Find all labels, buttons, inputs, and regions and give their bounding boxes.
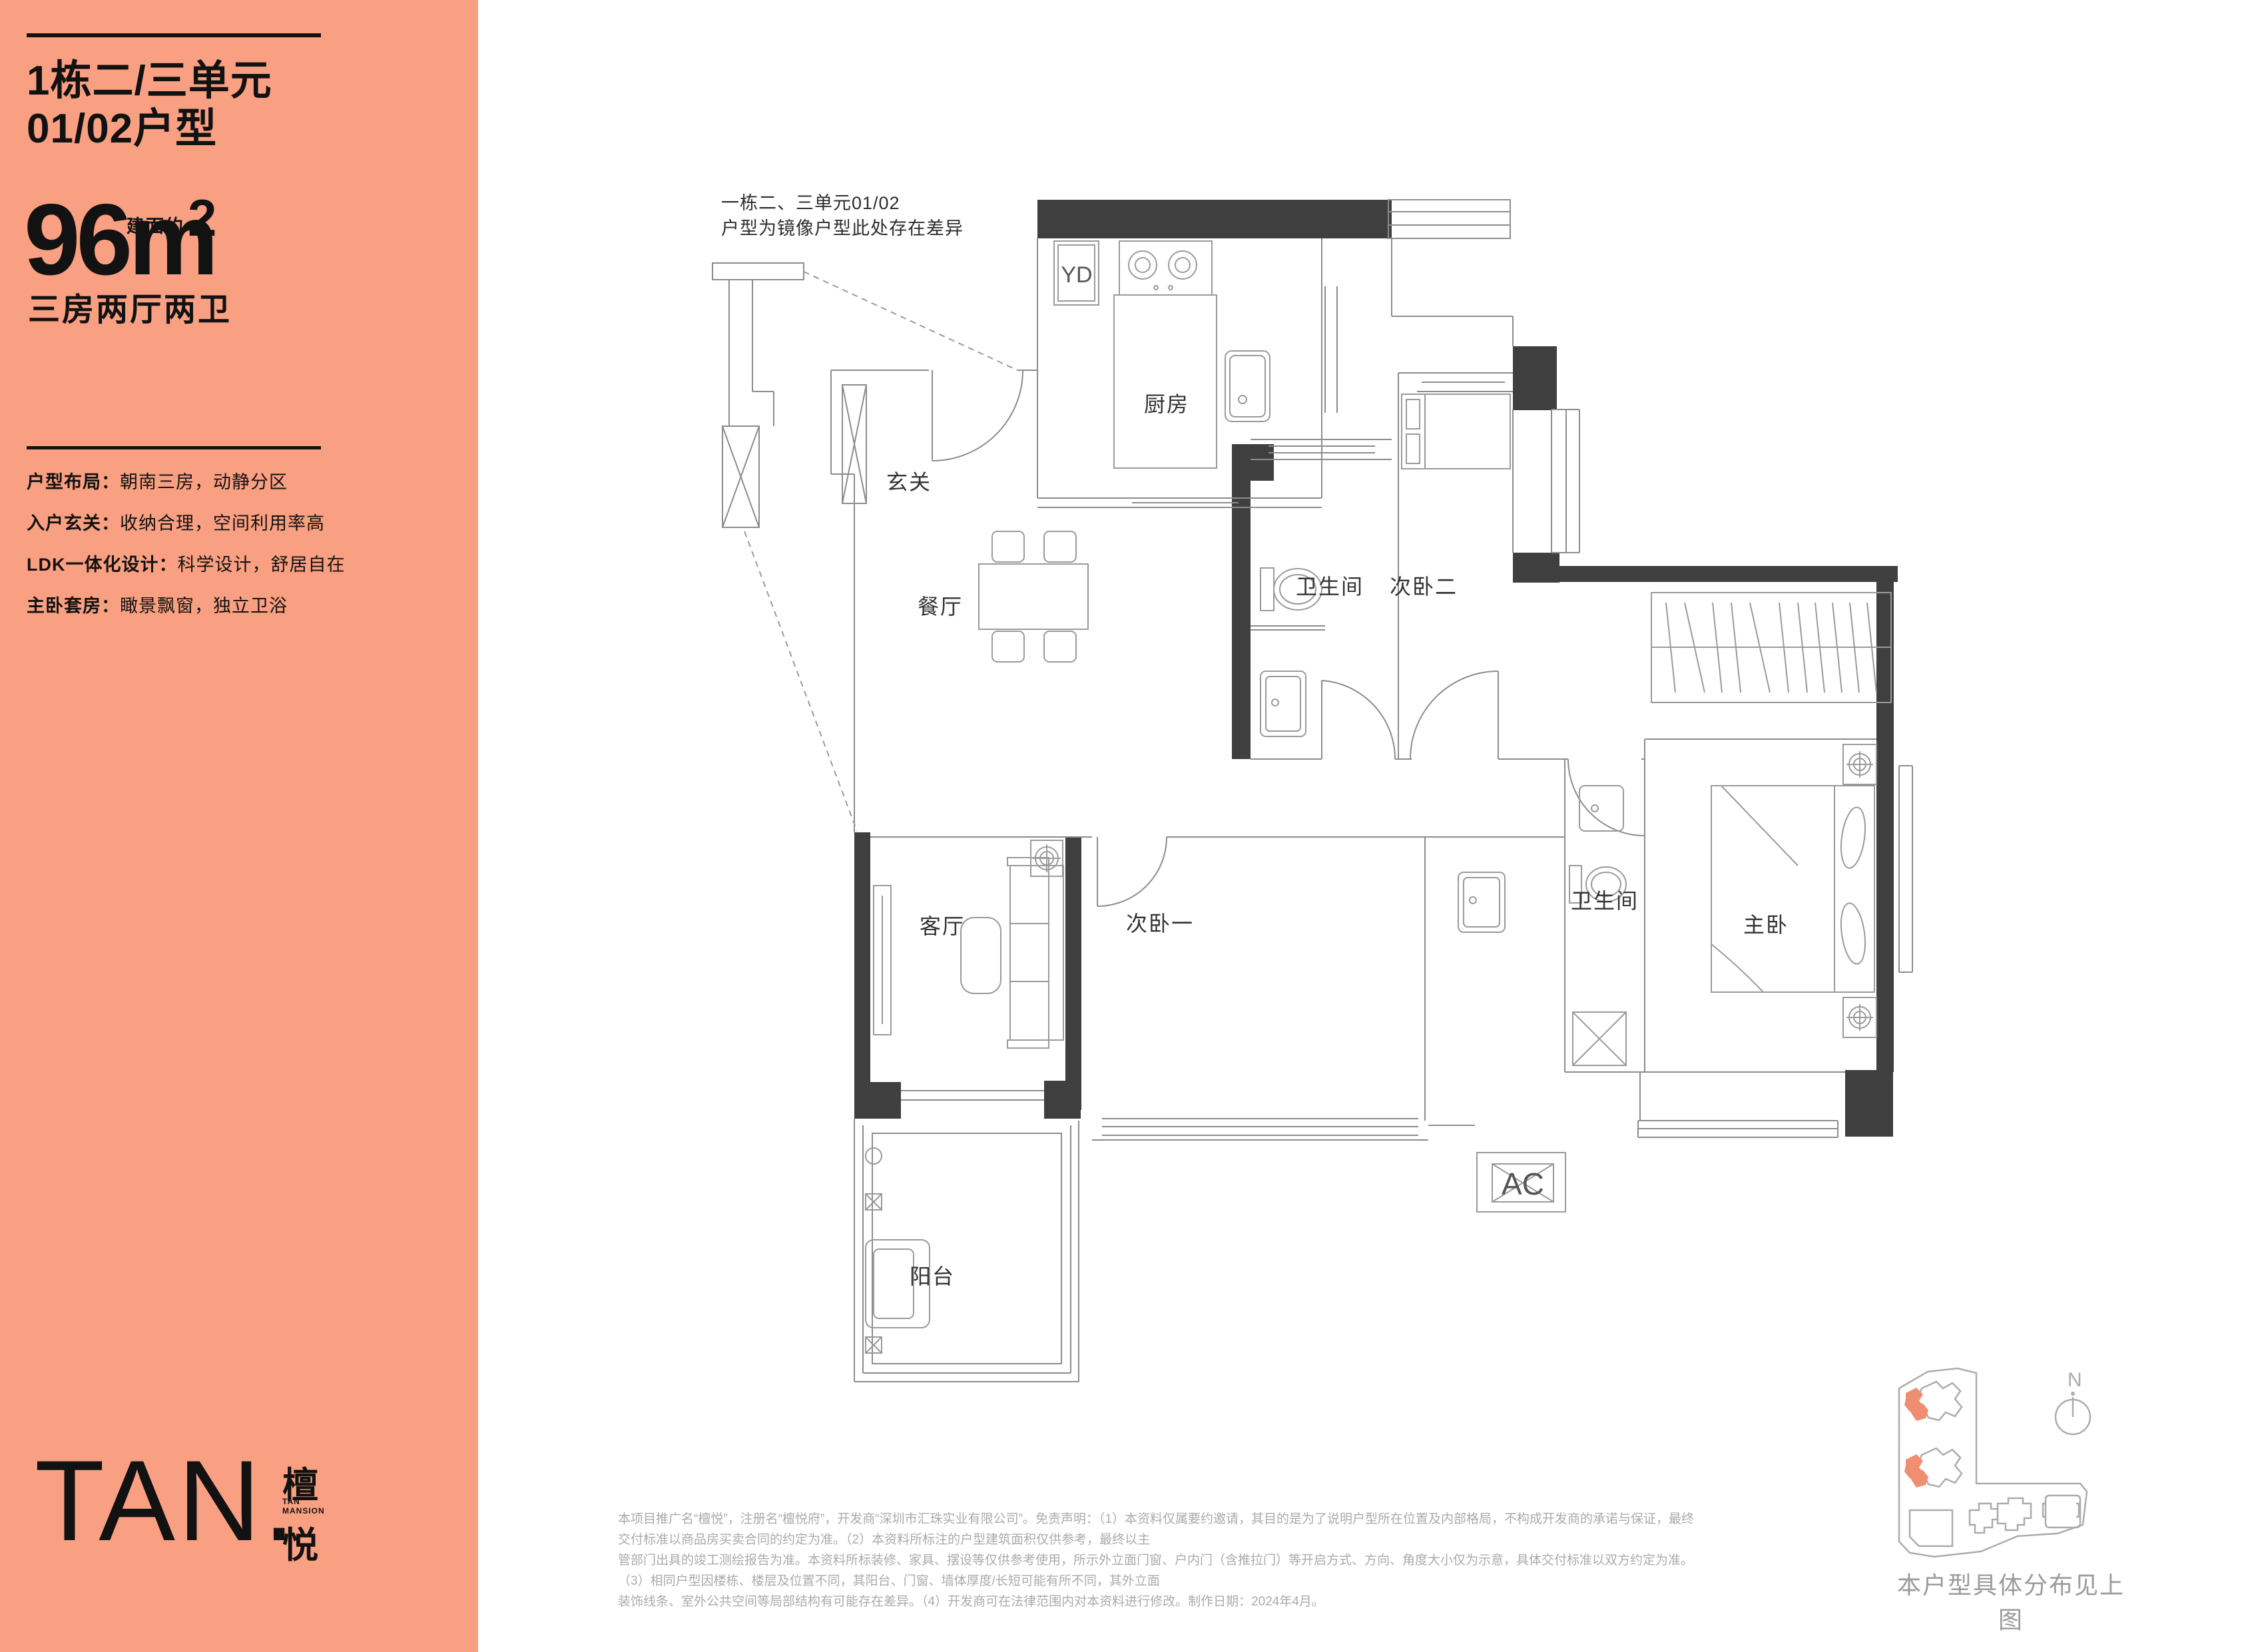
toilet-icon <box>1261 568 1274 611</box>
wardrobe-icon <box>1651 593 1891 702</box>
north-label: N <box>2068 1369 2082 1391</box>
brand-sub-line1: TAN <box>282 1497 325 1506</box>
room-label-zhuwo: 主卧 <box>1743 913 1789 937</box>
room-label-ciwo-2: 次卧二 <box>1390 575 1458 599</box>
feature-text: 朝南三房，动静分区 <box>120 472 288 492</box>
sink-icon <box>1261 671 1306 736</box>
kitchen-counter <box>1114 295 1217 468</box>
feature-item: 户型布局：朝南三房，动静分区 <box>27 467 453 493</box>
room-label-canting: 餐厅 <box>918 595 963 619</box>
feature-text: 科学设计，舒居自在 <box>178 555 346 575</box>
feature-text: 收纳合理，空间利用率高 <box>120 513 325 533</box>
site-map-caption: 本户型具体分布见上图 <box>1891 1566 2131 1635</box>
mirror-dashed-links <box>744 272 1017 831</box>
room-label-chufang: 厨房 <box>1144 392 1189 416</box>
furniture <box>866 241 1891 1353</box>
site-boundary <box>1899 1368 2087 1557</box>
feature-text: 瞰景飘窗，独立卫浴 <box>120 596 288 616</box>
coffee-table-icon <box>961 918 1001 993</box>
room-label-weishengjian-2: 卫生间 <box>1571 889 1639 913</box>
feature-label: 入户玄关： <box>27 513 120 533</box>
kitchen-sink-icon <box>1225 351 1270 421</box>
unit-location-highlight <box>1904 1388 1928 1488</box>
feature-item: LDK一体化设计：科学设计，舒居自在 <box>27 550 453 576</box>
room-label-xuanguan: 玄关 <box>886 470 932 494</box>
feature-item: 主卧套房：瞰景飘窗，独立卫浴 <box>27 591 453 617</box>
area-value: 96m <box>24 189 214 290</box>
mark-label-yd: YD <box>1061 262 1092 288</box>
unit-title-line2: 01/02户型 <box>27 105 272 153</box>
interior-walls <box>712 200 1912 1382</box>
floorplan-drawing: 玄关厨房餐厅客厅卫生间次卧二次卧一卫生间主卧阳台YDAC <box>653 87 2051 1385</box>
master-bed-icon <box>1711 786 1874 992</box>
brand-logo-subtext: TAN MANSION <box>282 1497 325 1515</box>
room-label-weishengjian-1: 卫生间 <box>1296 575 1364 599</box>
brand-logo-latin: TAN. <box>35 1444 298 1558</box>
feature-label: LDK一体化设计： <box>27 555 178 575</box>
disclaimer-line2: 管部门出具的竣工测绘报告为准。本资料所标装修、家具、摆设等仅供参考使用，所示外立… <box>618 1550 1707 1591</box>
room-label-keting: 客厅 <box>920 914 965 938</box>
unit-title-line1: 1栋二/三单元 <box>27 57 272 105</box>
layout-summary: 三房两厅两卫 <box>28 283 232 330</box>
feature-list: 户型布局：朝南三房，动静分区 入户玄关：收纳合理，空间利用率高 LDK一体化设计… <box>27 467 453 633</box>
feature-label: 主卧套房： <box>27 596 120 616</box>
bed-icon <box>1402 394 1510 469</box>
brand-sub-line2: MANSION <box>282 1506 325 1515</box>
area-superscript: 2 <box>188 188 216 248</box>
site-map-inset: N <box>1878 1345 2157 1571</box>
top-divider <box>27 33 321 37</box>
legal-disclaimer: 本项目推广名“檀悦”，注册名“檀悦府”，开发商“深圳市汇珠实业有限公司”。免责声… <box>618 1509 1707 1612</box>
room-label-ciwo-1: 次卧一 <box>1126 912 1194 936</box>
sidebar-panel: 1栋二/三单元 01/02户型 96m 建面约 2 三房两厅两卫 户型布局：朝南… <box>0 0 478 1652</box>
disclaimer-line3: 装饰线条、室外公共空间等局部结构有可能存在差异。（4）开发商可在法律范围内对本资… <box>618 1591 1707 1612</box>
dining-table-icon <box>979 564 1088 629</box>
structural-walls <box>854 200 1898 1137</box>
vanity-sink-icon <box>1458 872 1505 932</box>
disclaimer-line1: 本项目推广名“檀悦”，注册名“檀悦府”，开发商“深圳市汇珠实业有限公司”。免责声… <box>618 1509 1707 1550</box>
area-prefix: 建面约 <box>127 212 184 238</box>
brand-logo-cn-bottom: 悦 <box>282 1515 318 1568</box>
feature-item: 入户玄关：收纳合理，空间利用率高 <box>27 509 453 535</box>
feature-label: 户型布局： <box>27 472 120 492</box>
stove-icon <box>1119 241 1212 295</box>
mark-label-ac: AC <box>1502 1167 1544 1201</box>
sofa-icon <box>1010 866 1049 1040</box>
door-swings <box>932 370 1645 906</box>
room-labels: 玄关厨房餐厅客厅卫生间次卧二次卧一卫生间主卧阳台YDAC <box>886 262 1789 1288</box>
unit-title: 1栋二/三单元 01/02户型 <box>27 57 272 153</box>
room-label-yangtai: 阳台 <box>910 1264 955 1288</box>
mid-divider <box>27 446 321 449</box>
north-arrow-icon: N <box>2056 1369 2090 1434</box>
